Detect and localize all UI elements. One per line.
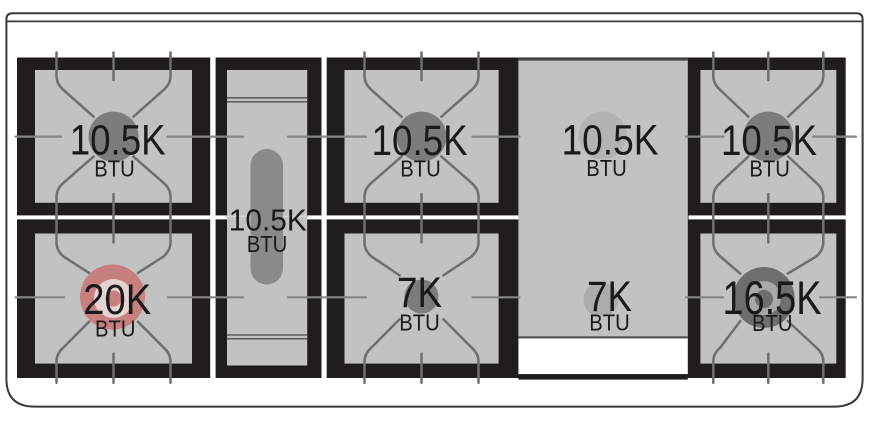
svg-text:BTU: BTU: [589, 310, 630, 336]
svg-text:BTU: BTU: [95, 316, 136, 342]
svg-text:BTU: BTU: [586, 155, 627, 181]
svg-text:BTU: BTU: [752, 310, 793, 336]
svg-text:BTU: BTU: [400, 156, 441, 182]
svg-text:BTU: BTU: [749, 156, 790, 182]
svg-text:BTU: BTU: [247, 231, 288, 257]
svg-text:BTU: BTU: [399, 309, 440, 335]
svg-text:BTU: BTU: [94, 156, 135, 182]
